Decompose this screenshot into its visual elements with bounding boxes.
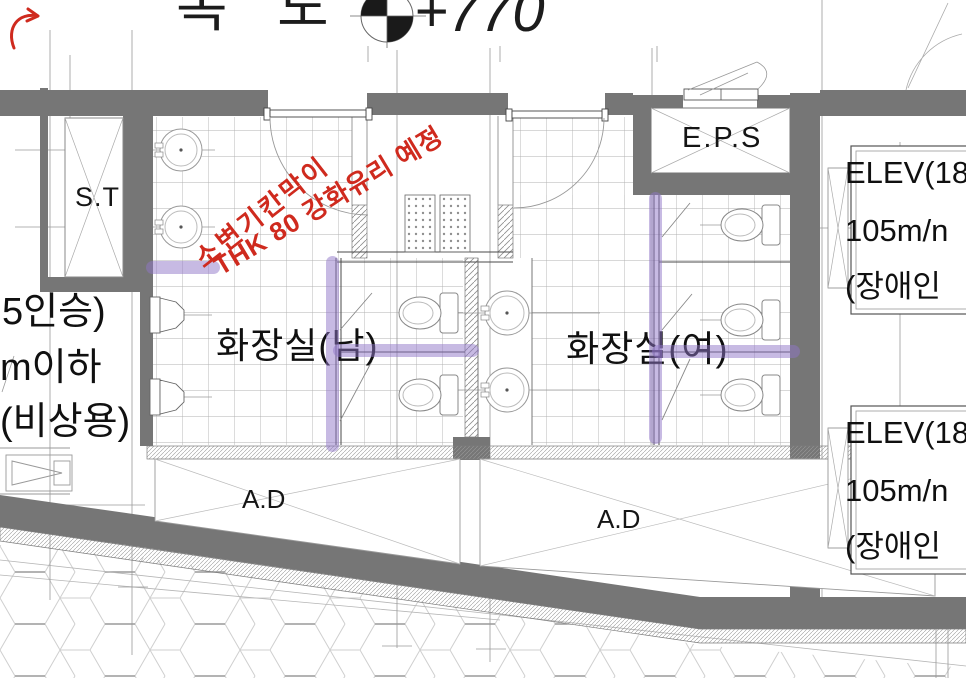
dotted-blocks: [405, 195, 470, 252]
corridor-door-arc: [906, 3, 962, 90]
level-value: +770: [414, 0, 545, 43]
floorplan-drawing: [0, 0, 966, 678]
red-annotation-arrow-icon: [0, 0, 64, 56]
left-elevator-door: [0, 448, 72, 494]
st-shaft-label: S.T: [75, 183, 120, 211]
floorplan-page: 복 도 +770 화장실(남) 화장실(여) E.P.S S.T A.D A.D…: [0, 0, 966, 678]
corridor-title: 복 도: [176, 0, 331, 37]
air-duct-right-label: A.D: [597, 506, 640, 533]
highlight-stroke-womens-vertical: [649, 192, 662, 444]
left-elevator-line3: (비상용): [0, 403, 130, 443]
highlight-stroke-womens-horizontal: [652, 345, 800, 358]
eps-door: [684, 62, 767, 100]
elevator-bottom-line1: ELEV(18: [845, 417, 966, 450]
elevator-bottom-line2: 105m/n: [845, 475, 948, 508]
eps-label: E.P.S: [682, 123, 762, 153]
left-elevator-line1: 5인승): [2, 293, 106, 333]
elevator-top-line1: ELEV(18: [845, 157, 966, 190]
elevator-bottom-line3: (장애인: [845, 531, 941, 564]
elevator-top-line3: (장애인: [845, 271, 941, 304]
highlight-stroke-mens-horizontal: [333, 344, 479, 357]
elevator-top-line2: 105m/n: [845, 215, 948, 248]
left-elevator-line2: m이하: [0, 349, 102, 389]
air-duct-left-label: A.D: [242, 486, 285, 513]
